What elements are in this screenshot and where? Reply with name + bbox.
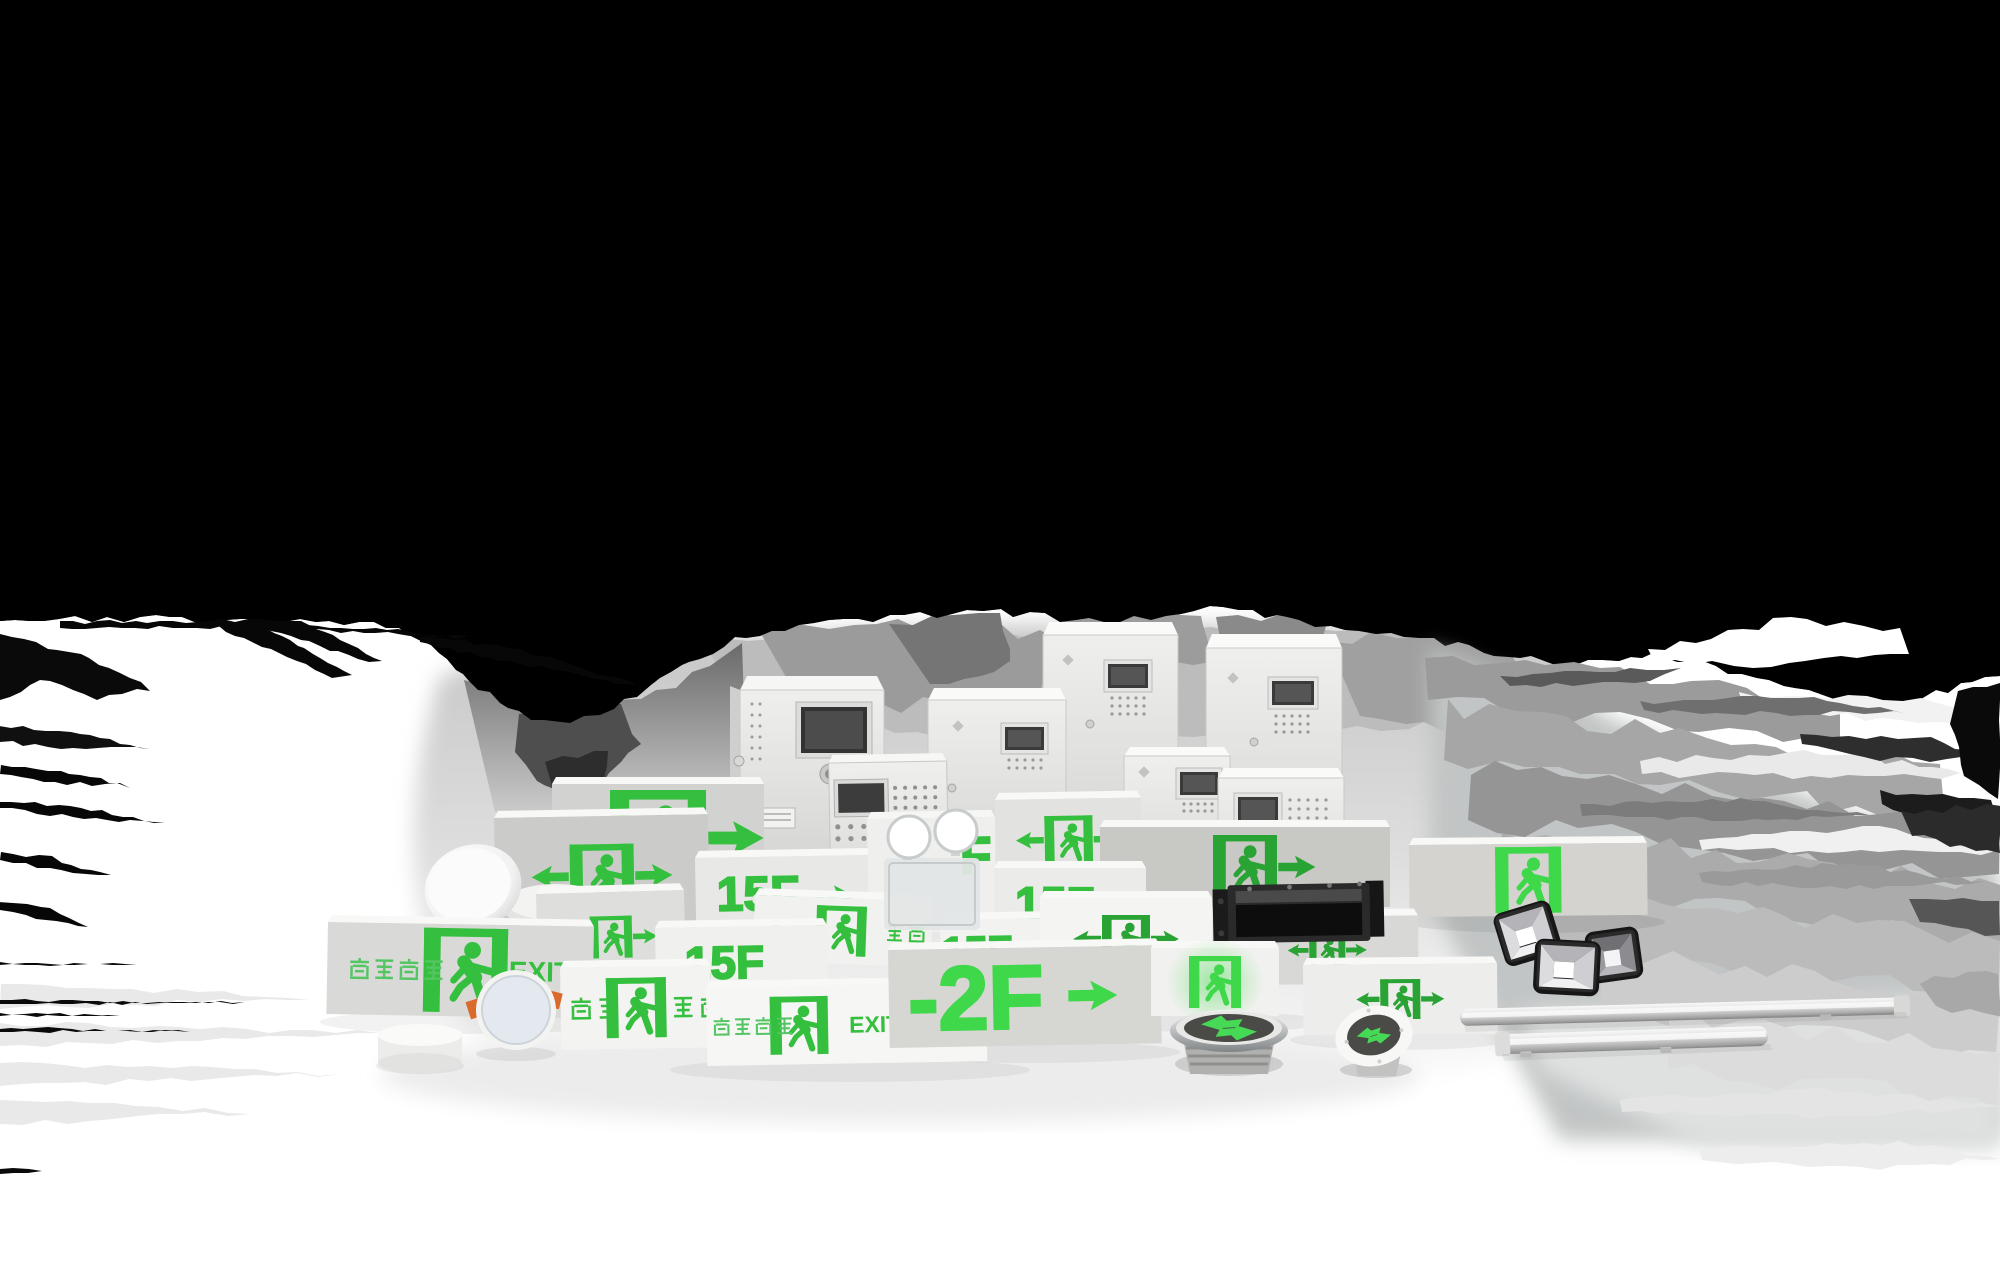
svg-text:-2F: -2F — [908, 948, 1045, 1050]
